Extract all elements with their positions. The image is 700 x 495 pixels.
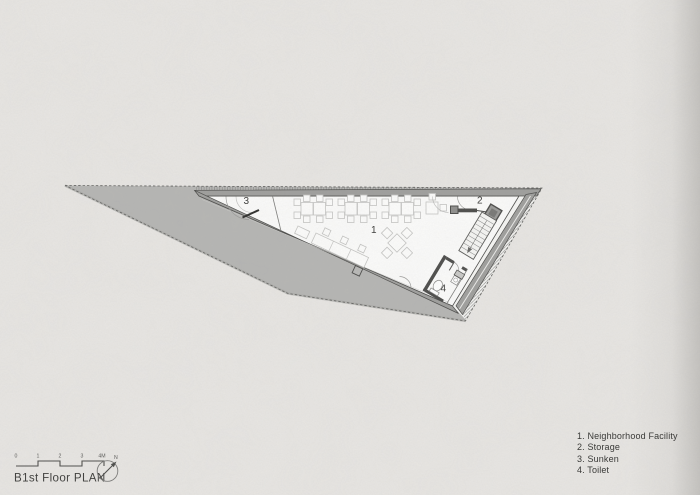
legend-item-3: 3. Sunken xyxy=(577,454,697,465)
legend: 1. Neighborhood Facility 2. Storage 3. S… xyxy=(577,431,697,477)
paper-texture-fine xyxy=(0,0,700,495)
legend-item-1: 1. Neighborhood Facility xyxy=(577,431,697,442)
floor-plan-drawing: 1 2 3 4 0 1 2 3 4M B1st Floor PLAN N xyxy=(0,0,700,495)
legend-item-2: 2. Storage xyxy=(577,442,697,453)
edge-shading xyxy=(630,0,700,495)
legend-item-4: 4. Toilet xyxy=(577,465,697,476)
drawing-sheet: 1 2 3 4 0 1 2 3 4M B1st Floor PLAN N 1. … xyxy=(0,0,700,495)
